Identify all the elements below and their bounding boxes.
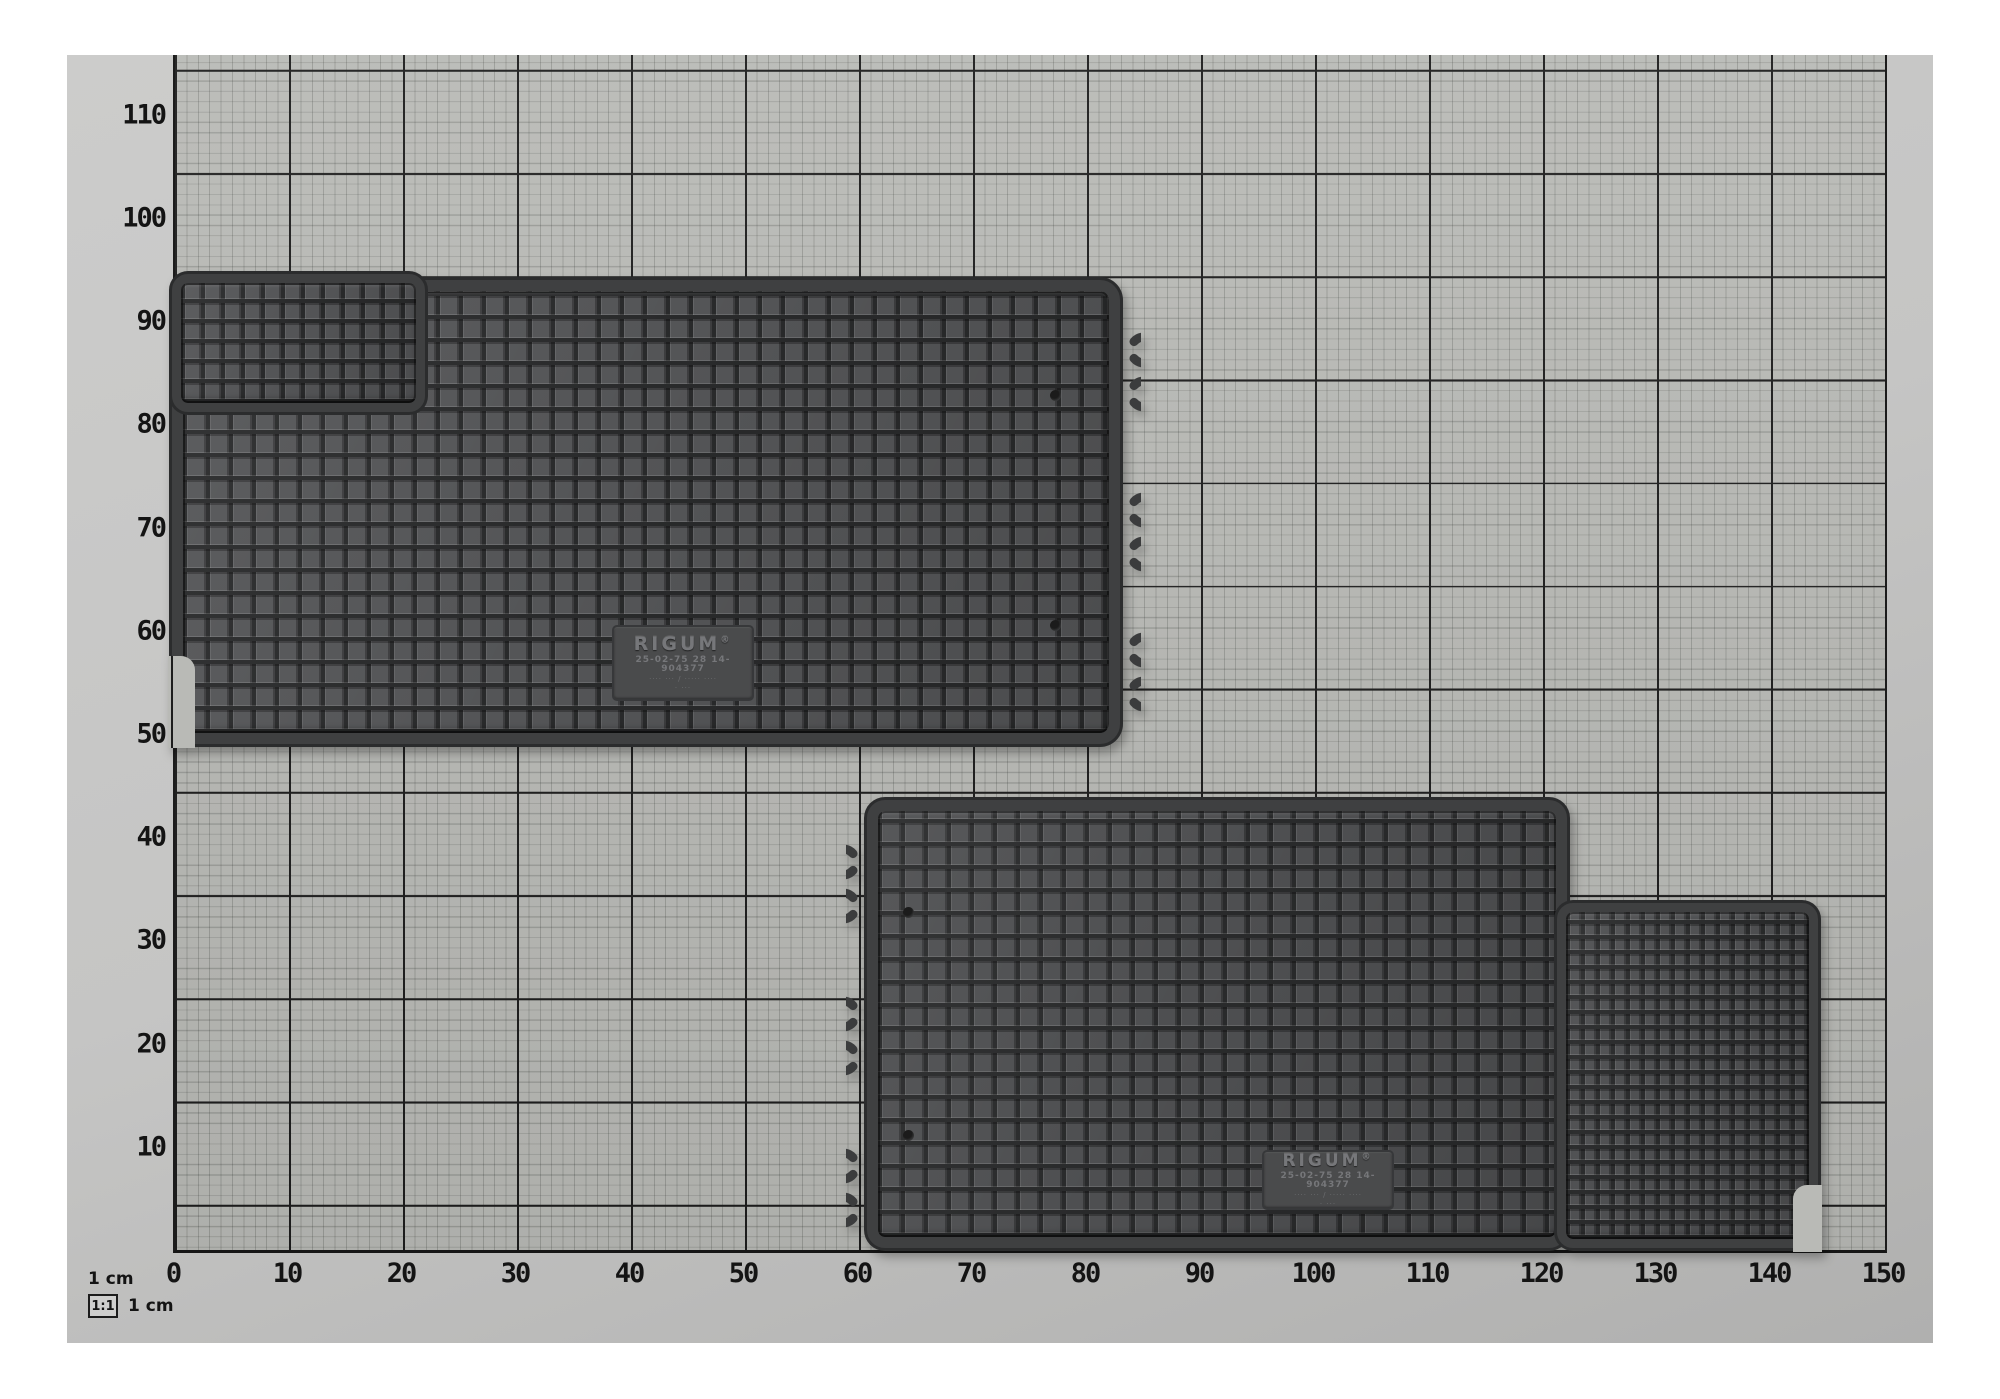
scale-unit-label: 1 cm xyxy=(128,1296,174,1316)
x-tick-label: 90 xyxy=(1185,1258,1214,1289)
x-tick-label: 10 xyxy=(273,1258,302,1289)
y-tick-label: 90 xyxy=(95,306,165,337)
y-tick-label: 30 xyxy=(95,925,165,956)
y-tick-label: 60 xyxy=(95,615,165,646)
embossed-label: RIGUM® 25-02-75 28 14- 904377 ···· ··· /… xyxy=(612,625,754,701)
y-tick-label: 110 xyxy=(95,99,165,130)
label-small-text: ···· ··· / ····· ···· xyxy=(1264,1192,1392,1199)
y-tick-label: 70 xyxy=(95,512,165,543)
x-tick-label: 80 xyxy=(1071,1258,1100,1289)
scale-legend: 1 cm 1:1 1 cm xyxy=(88,1269,174,1318)
ruler-unit-label: 1 cm xyxy=(88,1269,174,1289)
y-tick-label: 50 xyxy=(95,719,165,750)
fixing-hole xyxy=(903,1130,914,1141)
scale-ratio-box: 1:1 xyxy=(88,1294,118,1318)
x-tick-label: 30 xyxy=(501,1258,530,1289)
mat-left-heel-panel xyxy=(172,274,425,412)
brand-text: RIGUM® xyxy=(1264,1153,1392,1170)
x-tick-label: 20 xyxy=(387,1258,416,1289)
label-small-text: · ··· xyxy=(1264,1201,1392,1208)
connector-clip-icon xyxy=(846,1140,880,1236)
x-tick-label: 100 xyxy=(1292,1258,1335,1289)
mat-right-main-area xyxy=(867,800,1567,1248)
fixing-hole xyxy=(903,907,914,918)
connector-clip-icon xyxy=(1107,324,1141,420)
connector-clip-icon xyxy=(846,988,880,1084)
x-tick-label: 120 xyxy=(1520,1258,1563,1289)
y-tick-label: 80 xyxy=(95,409,165,440)
mat-left-bottom-notch xyxy=(168,656,195,748)
x-tick-label: 50 xyxy=(729,1258,758,1289)
mat-right-bottom-notch xyxy=(1793,1185,1822,1252)
product-photo: 0102030405060708090100110120130140150 11… xyxy=(67,55,1933,1343)
fixing-hole xyxy=(1050,390,1061,401)
y-tick-label: 20 xyxy=(95,1028,165,1059)
label-small-text: ···· ··· / ····· ···· xyxy=(614,676,752,683)
mat-right-step-panel xyxy=(1557,903,1818,1248)
connector-clip-icon xyxy=(1107,484,1141,580)
x-tick-label: 150 xyxy=(1862,1258,1905,1289)
y-tick-label: 10 xyxy=(95,1131,165,1162)
part-code-text: 25-02-75 28 14- 904377 xyxy=(1264,1172,1392,1190)
embossed-label: RIGUM® 25-02-75 28 14- 904377 ···· ··· /… xyxy=(1262,1150,1394,1210)
fixing-hole xyxy=(1050,620,1061,631)
y-tick-label: 40 xyxy=(95,822,165,853)
x-tick-label: 140 xyxy=(1748,1258,1791,1289)
x-tick-label: 70 xyxy=(957,1258,986,1289)
connector-clip-icon xyxy=(1107,624,1141,720)
connector-clip-icon xyxy=(846,836,880,932)
x-tick-label: 130 xyxy=(1634,1258,1677,1289)
rubber-mat-right: RIGUM® 25-02-75 28 14- 904377 ···· ··· /… xyxy=(867,800,1818,1248)
y-tick-label: 100 xyxy=(95,203,165,234)
x-tick-label: 40 xyxy=(615,1258,644,1289)
x-tick-label: 60 xyxy=(843,1258,872,1289)
part-code-text: 25-02-75 28 14- 904377 xyxy=(614,656,752,674)
x-tick-label: 110 xyxy=(1406,1258,1449,1289)
rubber-mat-left: RIGUM® 25-02-75 28 14- 904377 ···· ··· /… xyxy=(172,274,1120,744)
label-small-text: · ··· xyxy=(614,685,752,692)
brand-text: RIGUM® xyxy=(614,635,752,654)
